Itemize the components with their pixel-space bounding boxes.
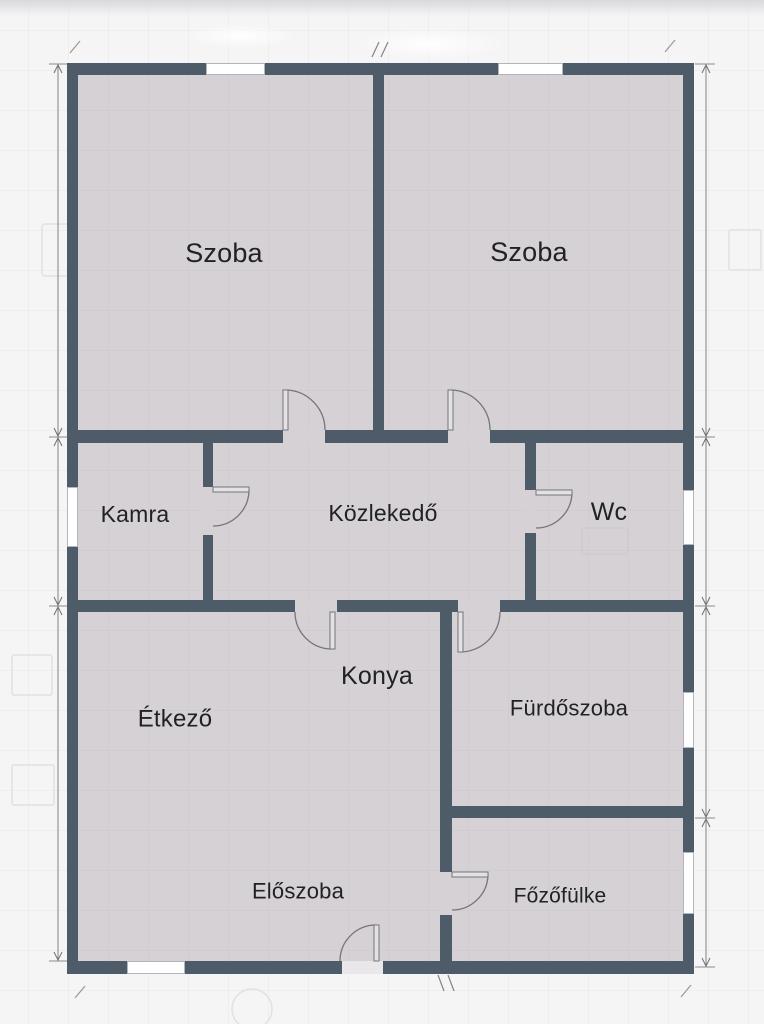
room-label-eloszoba: Előszoba [252, 879, 345, 904]
wc-door-leaf [536, 490, 572, 495]
room-label-etkezo: Étkező [138, 706, 213, 733]
fozo-doorway [440, 872, 452, 915]
fozo-window [683, 852, 694, 914]
room-label-furdoszoba: Fürdőszoba [510, 696, 629, 721]
szoba-left-door-leaf [283, 390, 288, 430]
wall-kozlekedo-bottom [67, 600, 694, 612]
wc-window [683, 490, 694, 545]
wall-furdo-fozo-divider [440, 806, 694, 818]
room-label-kamra: Kamra [101, 501, 170, 527]
entrance-doorway [342, 961, 383, 974]
room-label-szoba-right: Szoba [490, 237, 568, 267]
eloszoba-window [127, 961, 185, 974]
konya-doorway [295, 600, 337, 612]
szoba-right-door-leaf [448, 390, 453, 430]
floorplan-canvas: SzobaSzobaKamraKözlekedőWcÉtkezőKonyaFür… [0, 0, 764, 1024]
wc-doorway [525, 490, 536, 533]
szoba-left-window [206, 63, 265, 75]
szoba-right-window [498, 63, 563, 75]
room-label-kozlekedo: Közlekedő [328, 500, 437, 526]
wall-szoba-bottom [67, 430, 694, 443]
kamra-doorway [203, 487, 213, 535]
room-label-wc: Wc [591, 498, 628, 526]
fozo-door-leaf [452, 872, 488, 877]
szoba-left-doorway [283, 430, 325, 443]
room-label-fozofulke: Főzőfülke [514, 885, 607, 908]
kamra-door-leaf [213, 487, 249, 492]
furdo-window [683, 692, 694, 748]
soft-white-patch [185, 24, 295, 48]
entrance-door-leaf [374, 925, 379, 961]
wall-outer-top [67, 63, 694, 75]
floorplan-screen: SzobaSzobaKamraKözlekedőWcÉtkezőKonyaFür… [0, 0, 764, 1024]
furdo-door-leaf [458, 612, 463, 652]
furdo-doorway [458, 600, 500, 612]
wall-szoba-divider [373, 75, 384, 430]
konya-door-leaf [330, 612, 335, 649]
room-label-konya: Konya [341, 662, 413, 690]
top-fade [0, 0, 764, 16]
szoba-right-doorway [448, 430, 490, 443]
room-label-szoba-left: Szoba [185, 238, 263, 268]
kamra-window [67, 487, 78, 547]
